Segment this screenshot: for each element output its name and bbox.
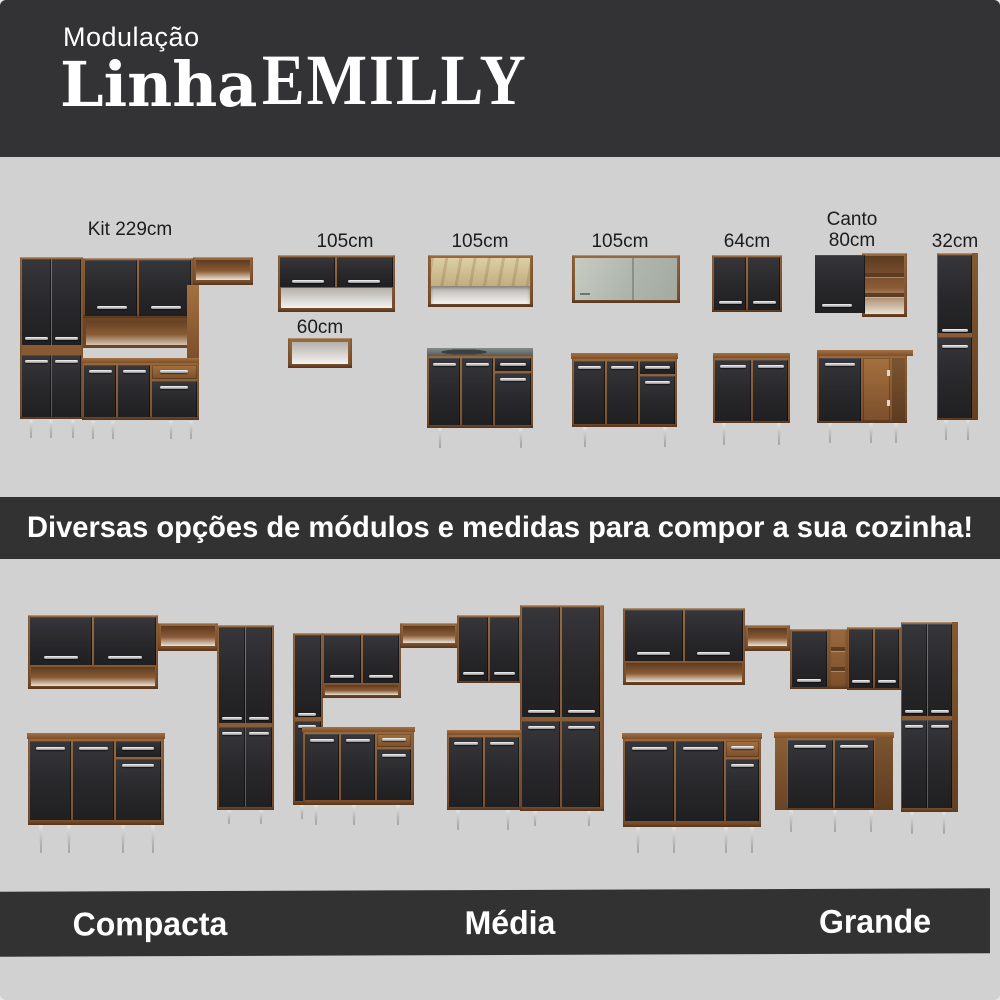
set-label-media: Média (423, 890, 598, 956)
modules-section: Kit 229cm 105cm 105cm 105cm 64cm Canto 8… (0, 157, 1000, 497)
sets-band: Compacta Média Grande (0, 888, 990, 956)
label-glass-105: 105cm (575, 231, 665, 252)
label-kit-229: Kit 229cm (55, 219, 205, 240)
label-wall-105: 105cm (300, 231, 390, 252)
title-collection-name: EMILLY (262, 39, 528, 122)
title-line-name: Linha (60, 48, 257, 121)
set-label-grande: Grande (788, 888, 963, 954)
tagline-band: Diversas opções de módulos e medidas par… (0, 497, 1000, 559)
sets-section (0, 559, 1000, 890)
label-wall-64: 64cm (703, 231, 791, 252)
header: Modulação Linha EMILLY (0, 0, 1000, 157)
label-tall-32: 32cm (911, 231, 999, 252)
label-open-105: 105cm (435, 231, 525, 252)
set-label-compacta: Compacta (63, 891, 238, 957)
tagline-text: Diversas opções de módulos e medidas par… (15, 497, 985, 559)
label-shelf-60: 60cm (280, 317, 360, 338)
banner: Modulação Linha EMILLY Kit 229cm 105cm 1… (0, 0, 1000, 1000)
label-corner-80: Canto 80cm (808, 209, 896, 251)
page-title: Linha EMILLY (60, 48, 528, 122)
